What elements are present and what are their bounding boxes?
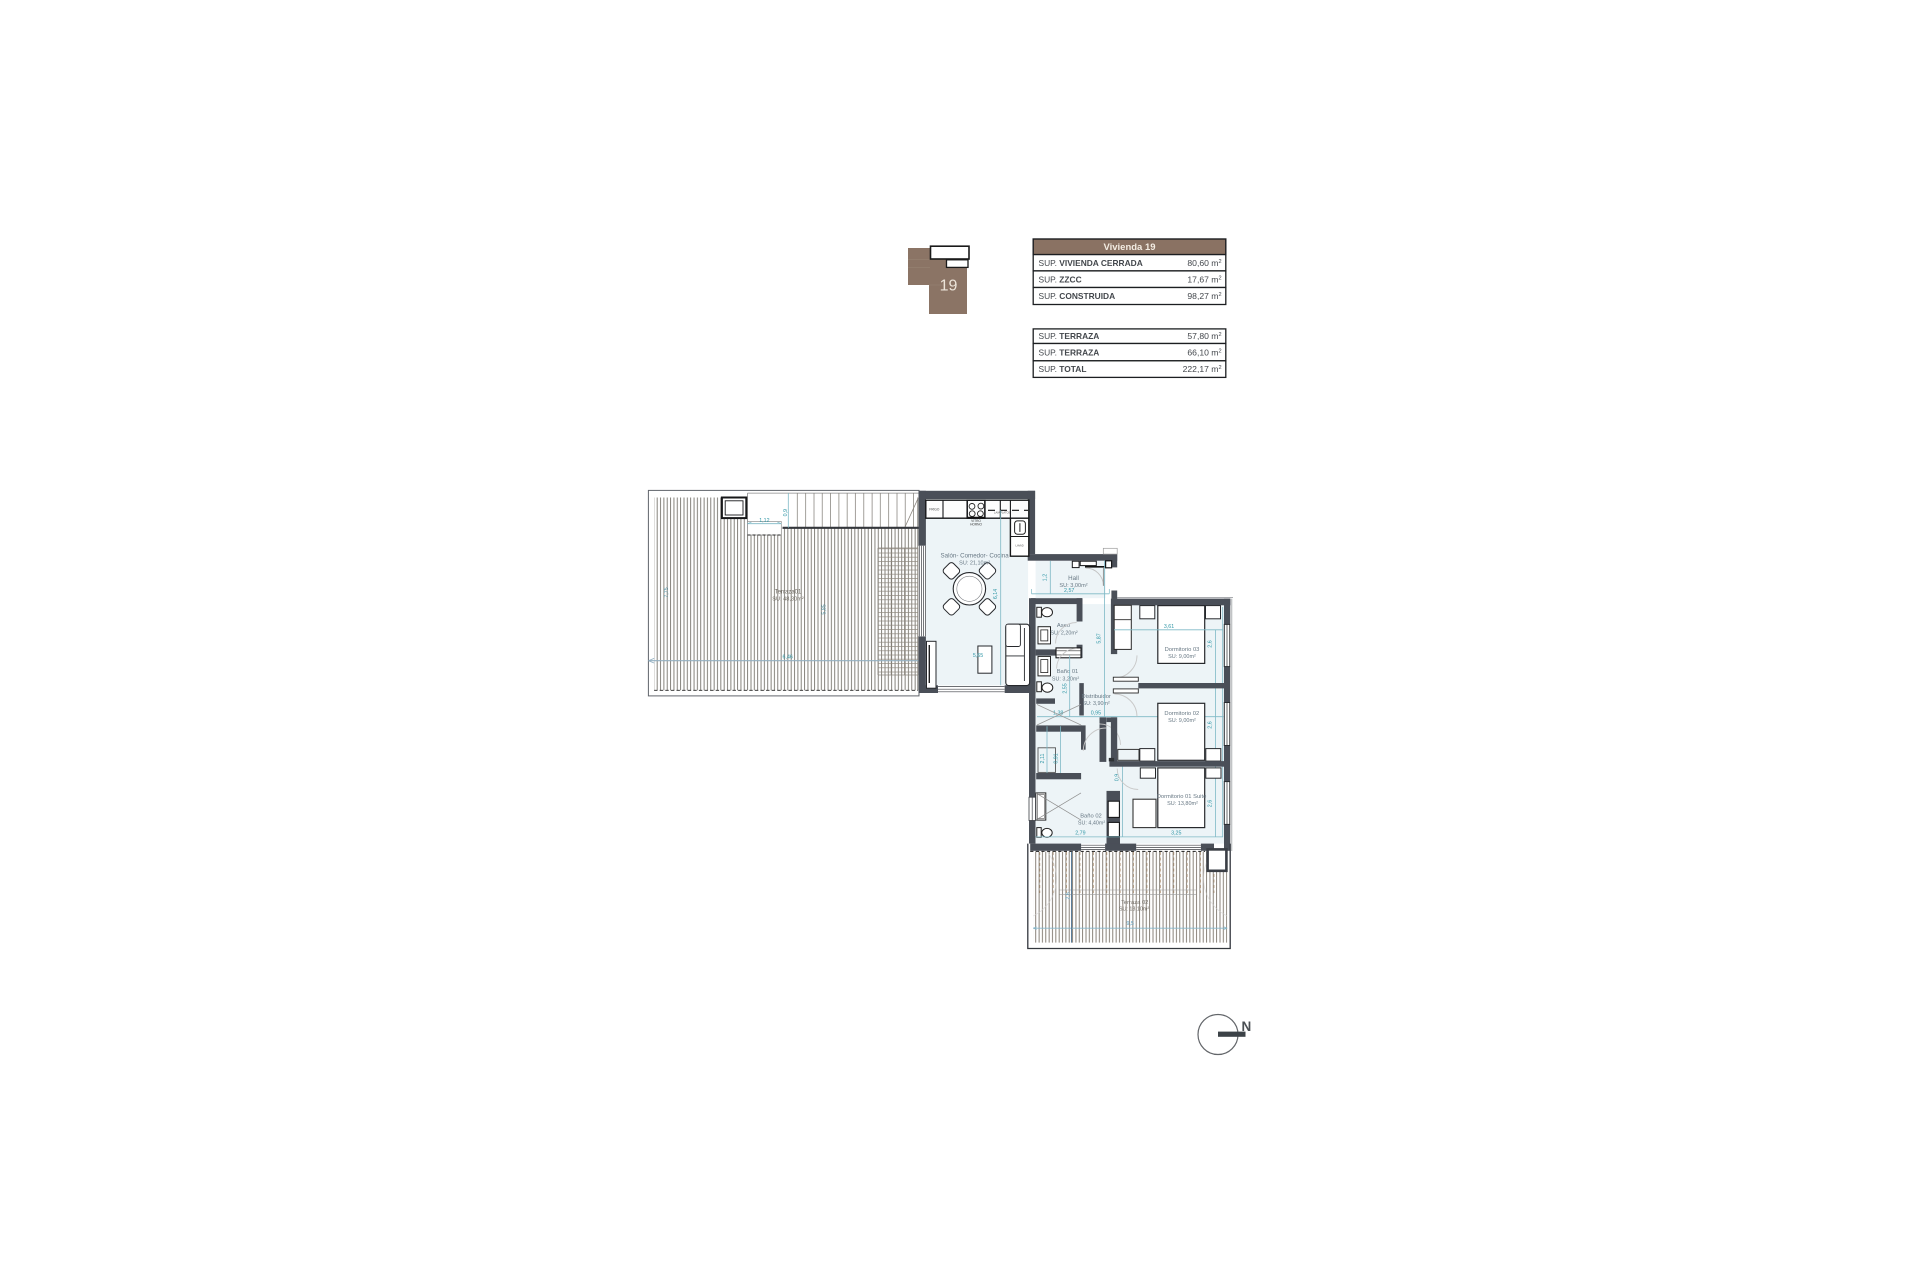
svg-text:Terraza 02: Terraza 02 <box>1121 900 1148 906</box>
svg-text:0,95: 0,95 <box>1091 710 1101 716</box>
svg-text:Dormitorio 03: Dormitorio 03 <box>1165 647 1200 653</box>
svg-text:SU: 48,30m²: SU: 48,30m² <box>772 596 804 602</box>
svg-text:LAVAD: LAVAD <box>1016 544 1024 548</box>
svg-text:5,87: 5,87 <box>1097 633 1103 643</box>
svg-text:5,85: 5,85 <box>822 604 828 614</box>
svg-text:3,61: 3,61 <box>1164 624 1174 630</box>
svg-text:1,2: 1,2 <box>1043 574 1049 581</box>
svg-text:2,55: 2,55 <box>1063 683 1069 693</box>
svg-text:2,57: 2,57 <box>1064 588 1074 594</box>
svg-text:SU: 13,80m²: SU: 13,80m² <box>1167 801 1198 807</box>
svg-text:6,14: 6,14 <box>993 589 999 599</box>
svg-text:80,60 m2: 80,60 m2 <box>1187 258 1221 268</box>
svg-text:SUP. VIVIENDA CERRADA: SUP. VIVIENDA CERRADA <box>1039 258 1143 268</box>
svg-text:98,27 m2: 98,27 m2 <box>1187 291 1221 301</box>
svg-text:0,9: 0,9 <box>1115 774 1121 781</box>
svg-text:SU: 2,20m²: SU: 2,20m² <box>1050 631 1077 637</box>
svg-text:2,11: 2,11 <box>1040 753 1046 763</box>
svg-text:1,12: 1,12 <box>759 518 769 524</box>
svg-text:2,6: 2,6 <box>1207 721 1213 728</box>
svg-text:SUP. CONSTRUIDA: SUP. CONSTRUIDA <box>1039 291 1116 301</box>
svg-text:Hall: Hall <box>1068 575 1079 582</box>
svg-text:Dormitorio 02: Dormitorio 02 <box>1164 711 1199 717</box>
svg-text:2,79: 2,79 <box>1075 830 1085 836</box>
svg-text:Distribuidor: Distribuidor <box>1082 694 1111 700</box>
svg-text:FRIGO: FRIGO <box>929 508 940 512</box>
svg-text:SU: 18,10m²: SU: 18,10m² <box>1119 906 1149 912</box>
svg-text:SUP. TERRAZA: SUP. TERRAZA <box>1039 347 1100 357</box>
svg-text:Vivienda 19: Vivienda 19 <box>1103 242 1155 253</box>
svg-text:Salón- Comedor- Cocina: Salón- Comedor- Cocina <box>941 552 1010 559</box>
svg-text:Baño 02: Baño 02 <box>1080 813 1102 819</box>
svg-text:N: N <box>1242 1019 1252 1034</box>
svg-text:SUP. ZZCC: SUP. ZZCC <box>1039 274 1082 284</box>
svg-text:17,67 m2: 17,67 m2 <box>1187 274 1221 284</box>
svg-text:SUP. TOTAL: SUP. TOTAL <box>1039 364 1087 374</box>
svg-text:2,6: 2,6 <box>1066 892 1072 899</box>
svg-text:2,6: 2,6 <box>1207 800 1213 807</box>
svg-text:Terraza01: Terraza01 <box>775 590 802 596</box>
svg-text:7,75: 7,75 <box>664 587 670 597</box>
svg-text:9,5: 9,5 <box>1127 921 1134 927</box>
svg-text:2,6: 2,6 <box>1207 640 1213 647</box>
svg-text:6,46: 6,46 <box>783 655 793 661</box>
svg-text:57,80 m2: 57,80 m2 <box>1187 331 1221 341</box>
svg-text:LAVAPLATOS: LAVAPLATOS <box>994 510 1011 514</box>
svg-text:SU: 4,40m²: SU: 4,40m² <box>1078 821 1105 827</box>
svg-text:HORNO: HORNO <box>970 523 982 527</box>
svg-text:0,9: 0,9 <box>783 509 789 516</box>
svg-text:222,17 m2: 222,17 m2 <box>1183 364 1222 374</box>
svg-text:SU: 3,90m²: SU: 3,90m² <box>1083 701 1110 707</box>
svg-text:3,25: 3,25 <box>1171 830 1181 836</box>
svg-text:Dormitorio 01 Suite: Dormitorio 01 Suite <box>1157 794 1207 800</box>
svg-text:SU: 3,20m²: SU: 3,20m² <box>1052 676 1079 682</box>
svg-text:SUP. TERRAZA: SUP. TERRAZA <box>1039 331 1100 341</box>
svg-text:5,65: 5,65 <box>973 653 983 659</box>
svg-text:66,10 m2: 66,10 m2 <box>1187 347 1221 357</box>
svg-text:19: 19 <box>940 278 958 295</box>
svg-text:SU: 9,00m²: SU: 9,00m² <box>1168 654 1196 660</box>
svg-text:SU: 21,10m²: SU: 21,10m² <box>959 560 990 566</box>
svg-text:SU: 9,00m²: SU: 9,00m² <box>1168 718 1196 724</box>
svg-text:Baño 01: Baño 01 <box>1057 669 1079 675</box>
svg-text:0,91: 0,91 <box>1053 753 1059 763</box>
